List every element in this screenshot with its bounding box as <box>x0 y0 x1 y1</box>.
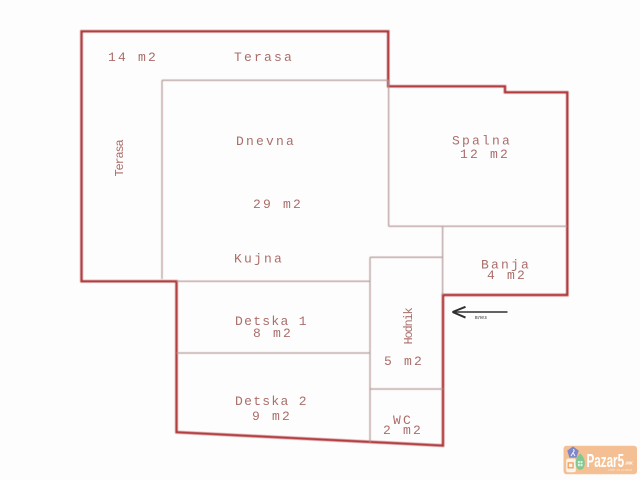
svg-text:влез: влез <box>475 315 487 321</box>
svg-text:Detska 2: Detska 2 <box>235 394 308 409</box>
svg-text:Hodnik: Hodnik <box>402 307 416 344</box>
svg-text:Kujna: Kujna <box>234 252 284 267</box>
svg-text:12 m2: 12 m2 <box>460 147 510 162</box>
svg-text:.мк: .мк <box>625 461 633 467</box>
svg-text:4 m2: 4 m2 <box>487 268 527 283</box>
svg-text:8 m2: 8 m2 <box>253 326 293 341</box>
svg-text:14 m2: 14 m2 <box>108 50 158 65</box>
svg-text:Terasa: Terasa <box>234 50 294 65</box>
svg-text:9 m2: 9 m2 <box>252 409 292 424</box>
svg-text:2 m2: 2 m2 <box>383 423 423 438</box>
svg-text:Dnevna: Dnevna <box>236 134 296 149</box>
svg-text:сайт за огласи: сайт за огласи <box>608 468 632 472</box>
svg-text:29 m2: 29 m2 <box>253 197 303 212</box>
svg-text:Terasa: Terasa <box>113 139 127 176</box>
svg-text:5 m2: 5 m2 <box>384 354 424 369</box>
